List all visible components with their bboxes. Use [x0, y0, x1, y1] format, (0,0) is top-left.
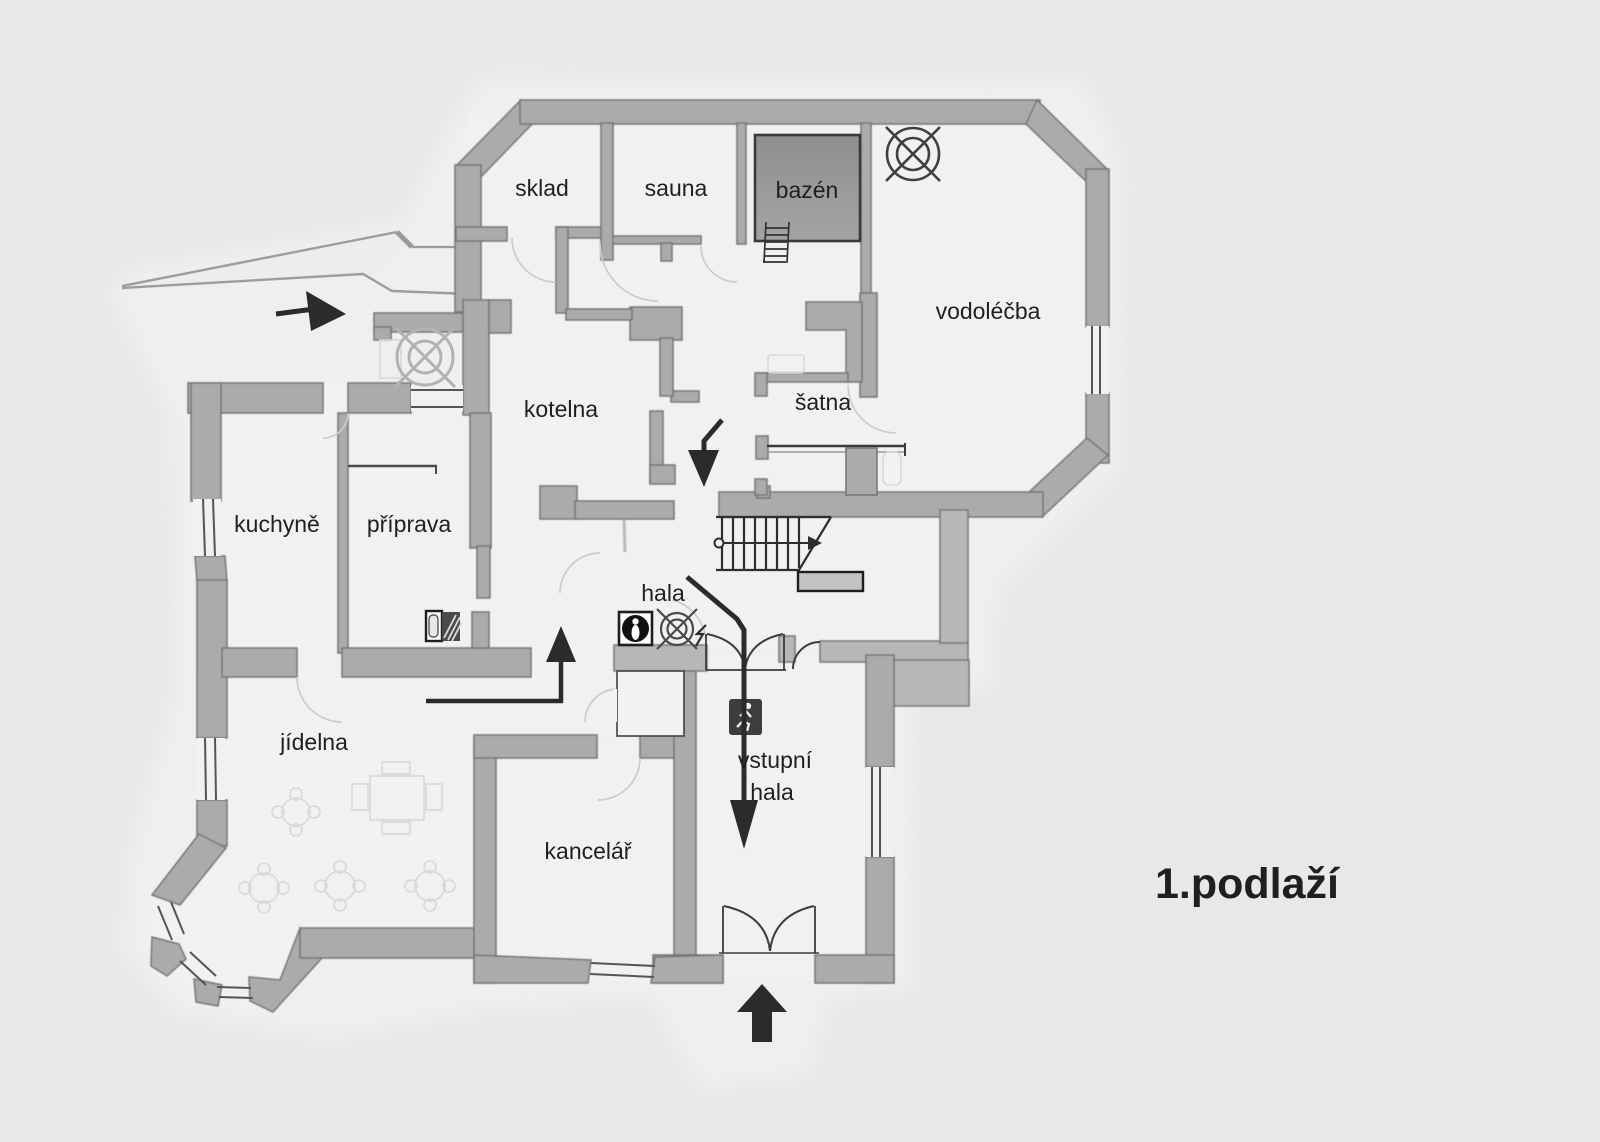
svg-text:jídelna: jídelna: [279, 729, 348, 755]
svg-text:příprava: příprava: [367, 511, 452, 537]
svg-text:sklad: sklad: [515, 175, 569, 201]
svg-text:šatna: šatna: [795, 389, 851, 415]
svg-text:bazén: bazén: [776, 177, 839, 203]
svg-text:1.podlaží: 1.podlaží: [1155, 860, 1341, 908]
svg-text:sauna: sauna: [645, 175, 708, 201]
svg-text:kotelna: kotelna: [524, 396, 598, 422]
svg-text:kancelář: kancelář: [545, 838, 633, 864]
svg-text:hala: hala: [641, 580, 685, 606]
svg-text:hala: hala: [750, 779, 794, 805]
svg-text:kuchyně: kuchyně: [234, 511, 320, 537]
svg-text:vodoléčba: vodoléčba: [936, 298, 1041, 324]
svg-text:vstupní: vstupní: [738, 747, 813, 773]
